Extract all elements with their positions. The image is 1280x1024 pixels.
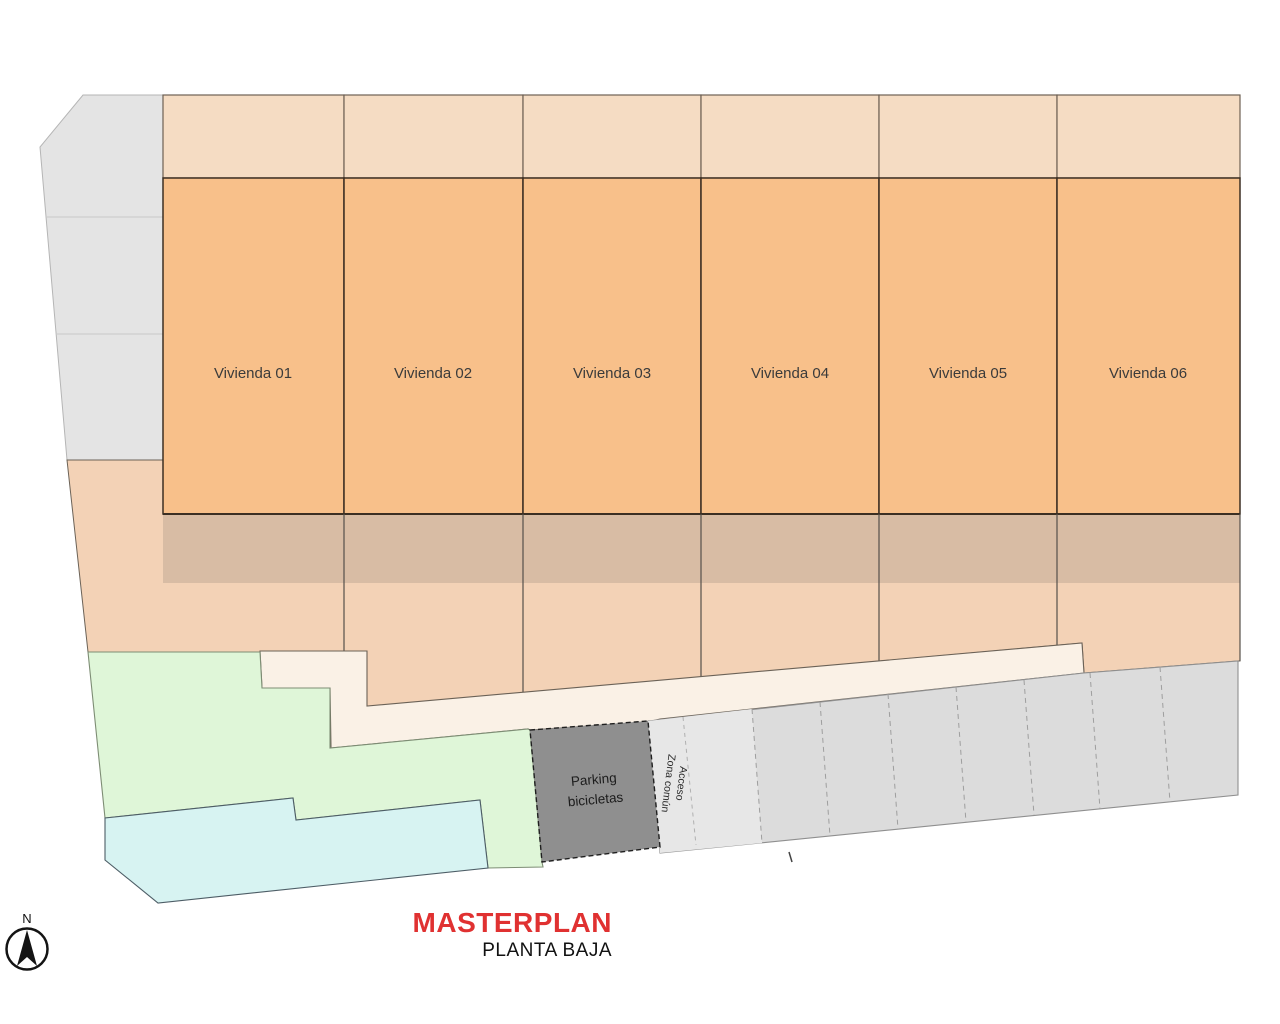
page-subtitle: PLANTA BAJA [482, 940, 612, 961]
page-title: MASTERPLAN [413, 907, 612, 938]
unit-blocks [163, 178, 1240, 514]
west-plot-area [40, 95, 163, 460]
masterplan-page: Parking bicicletas Acceso Zona común Viv… [0, 0, 1280, 1024]
upper-strip-cell [163, 95, 344, 178]
unit-block-2 [344, 178, 523, 514]
unit-label-5: Vivienda 05 [929, 365, 1007, 382]
unit-block-5 [879, 178, 1057, 514]
unit-label-2: Vivienda 02 [394, 365, 472, 382]
compass: N [7, 911, 48, 970]
curb-tick [789, 852, 792, 862]
unit-block-4 [701, 178, 879, 514]
unit-block-1 [163, 178, 344, 514]
unit-label-3: Vivienda 03 [573, 365, 651, 382]
unit-label-6: Vivienda 06 [1109, 365, 1187, 382]
masterplan-canvas: Parking bicicletas Acceso Zona común Viv… [0, 0, 1280, 1024]
unit-block-3 [523, 178, 701, 514]
unit-block-6 [1057, 178, 1240, 514]
upper-strip [163, 95, 1240, 178]
unit-label-4: Vivienda 04 [751, 365, 829, 382]
compass-north-label: N [22, 911, 31, 926]
upper-strip-cell [344, 95, 523, 178]
upper-strip-cell [1057, 95, 1240, 178]
upper-strip-cell [523, 95, 701, 178]
upper-strip-cell [701, 95, 879, 178]
upper-strip-cell [879, 95, 1057, 178]
unit-label-1: Vivienda 01 [214, 365, 292, 382]
